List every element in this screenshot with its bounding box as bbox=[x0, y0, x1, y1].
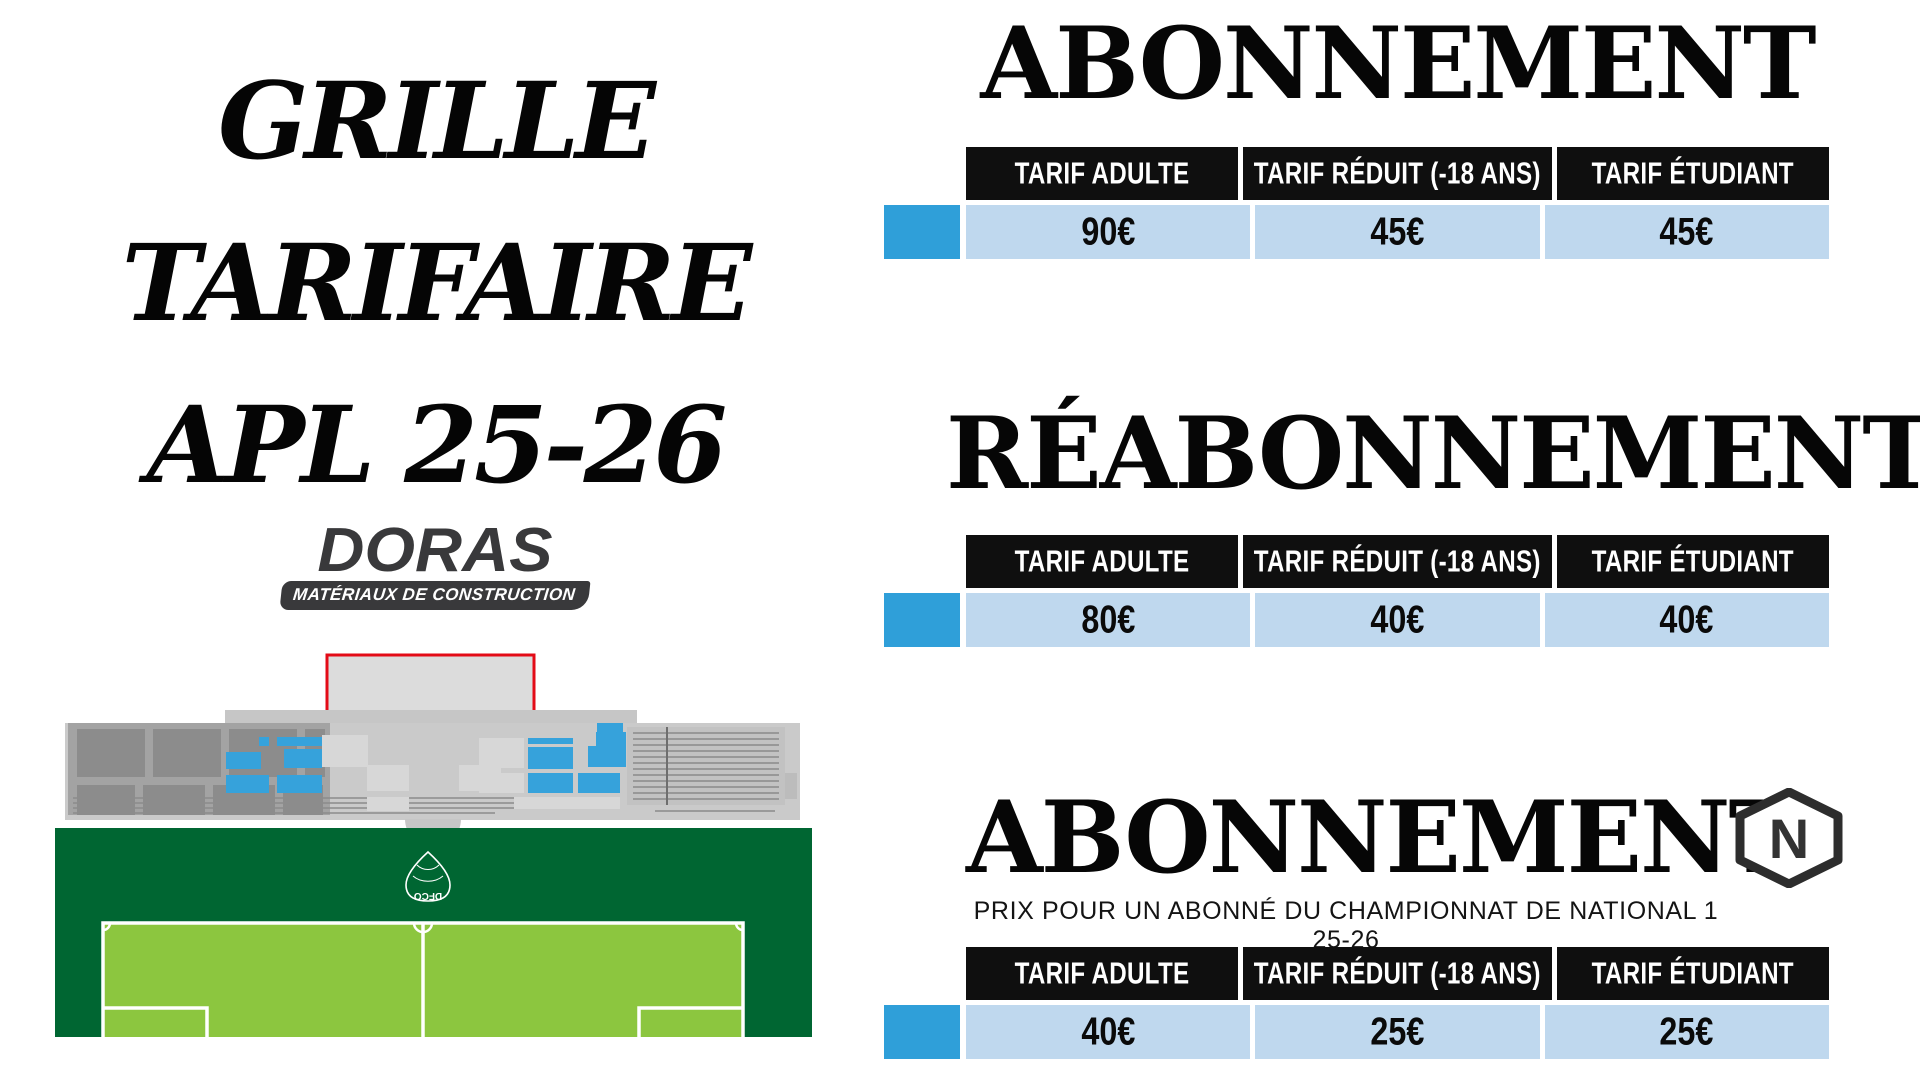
section-3-price-row: 40€ 25€ 25€ bbox=[966, 1005, 1829, 1059]
national-hexagon-icon: N bbox=[1733, 788, 1845, 888]
sponsor-logo: DORAS MATÉRIAUX DE CONSTRUCTION bbox=[0, 523, 870, 610]
header-cell: TARIF ÉTUDIANT bbox=[1557, 947, 1829, 1000]
price-cell: 40€ bbox=[1255, 593, 1539, 647]
left-column: GRILLE TARIFAIRE APL 25-26 DORAS MATÉRIA… bbox=[0, 0, 870, 1080]
header-cell: TARIF ADULTE bbox=[966, 147, 1238, 200]
header-cell: TARIF ADULTE bbox=[966, 947, 1238, 1000]
legend-swatch bbox=[884, 1005, 960, 1059]
section-2-table-header: TARIF ADULTE TARIF RÉDUIT (-18 ANS) TARI… bbox=[966, 535, 1829, 588]
poster-title: GRILLE TARIFAIRE APL 25-26 bbox=[0, 40, 870, 526]
stadium-red-box bbox=[327, 655, 534, 712]
header-cell: TARIF RÉDUIT (-18 ANS) bbox=[1243, 147, 1551, 200]
poster-canvas: GRILLE TARIFAIRE APL 25-26 DORAS MATÉRIA… bbox=[0, 0, 1920, 1080]
price-cell: 25€ bbox=[1255, 1005, 1539, 1059]
section-3-table-header: TARIF ADULTE TARIF RÉDUIT (-18 ANS) TARI… bbox=[966, 947, 1829, 1000]
legend-swatch bbox=[884, 593, 960, 647]
stadium-right-terrace bbox=[627, 727, 797, 811]
stadium-map-svg: DFCO bbox=[55, 645, 815, 1075]
poster-title-line-3: APL 25-26 bbox=[0, 364, 870, 526]
section-2-heading: RÉABONNEMENT bbox=[946, 402, 1849, 507]
poster-title-line-2: TARIFAIRE bbox=[0, 202, 870, 364]
dfco-crest-text: DFCO bbox=[414, 890, 443, 901]
sponsor-tagline: MATÉRIAUX DE CONSTRUCTION bbox=[279, 581, 590, 610]
price-cell: 90€ bbox=[966, 205, 1250, 259]
section-2-price-row: 80€ 40€ 40€ bbox=[966, 593, 1829, 647]
section-1-table-header: TARIF ADULTE TARIF RÉDUIT (-18 ANS) TARI… bbox=[966, 147, 1829, 200]
header-cell: TARIF ÉTUDIANT bbox=[1557, 535, 1829, 588]
price-cell: 45€ bbox=[1255, 205, 1539, 259]
section-1-price-row: 90€ 45€ 45€ bbox=[966, 205, 1829, 259]
poster-title-line-1: GRILLE bbox=[0, 40, 870, 202]
national-badge: N bbox=[1733, 788, 1845, 888]
price-cell: 40€ bbox=[966, 1005, 1250, 1059]
price-cell: 40€ bbox=[1545, 593, 1829, 647]
sponsor-name: DORAS bbox=[317, 523, 552, 579]
legend-swatch bbox=[884, 205, 960, 259]
header-cell: TARIF RÉDUIT (-18 ANS) bbox=[1243, 947, 1551, 1000]
stadium-field bbox=[55, 828, 812, 1037]
price-cell: 80€ bbox=[966, 593, 1250, 647]
stadium-map: DFCO bbox=[55, 645, 815, 1075]
header-cell: TARIF ADULTE bbox=[966, 535, 1238, 588]
national-badge-letter: N bbox=[1769, 807, 1809, 870]
price-cell: 25€ bbox=[1545, 1005, 1829, 1059]
price-cell: 45€ bbox=[1545, 205, 1829, 259]
header-cell: TARIF RÉDUIT (-18 ANS) bbox=[1243, 535, 1551, 588]
section-1-heading: ABONNEMENT bbox=[966, 12, 1829, 117]
header-cell: TARIF ÉTUDIANT bbox=[1557, 147, 1829, 200]
section-3-heading: ABONNEMENT bbox=[966, 786, 1726, 891]
